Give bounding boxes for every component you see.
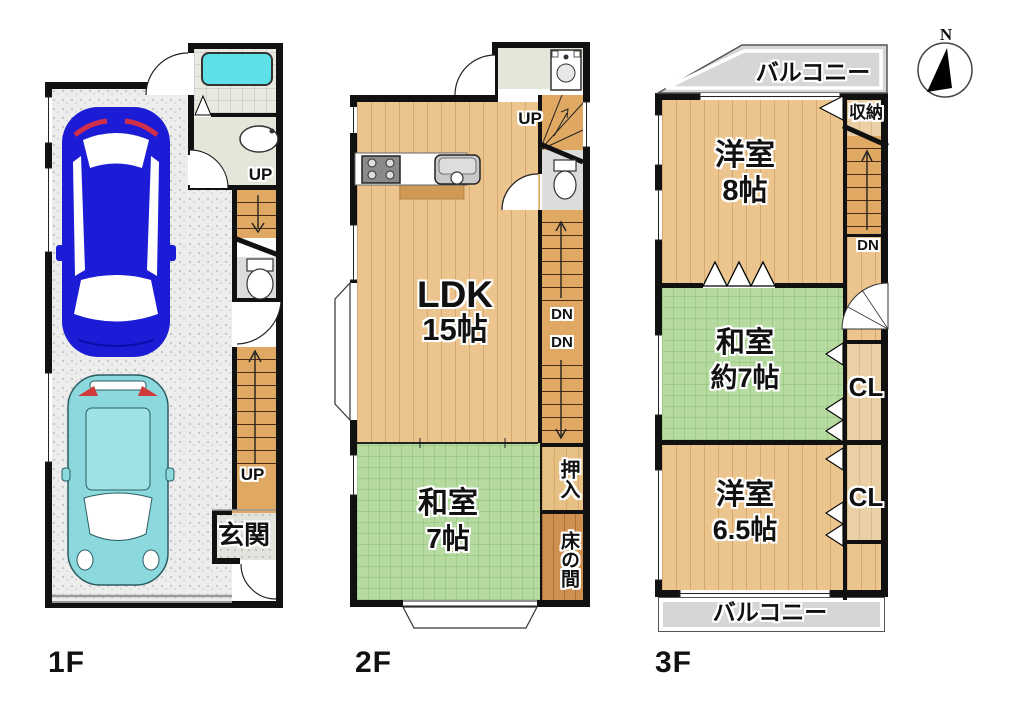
door-swing (237, 302, 281, 344)
wall-segment (350, 600, 403, 607)
tatami-name-label-2f: 和室 (368, 488, 528, 520)
floor-1-label: 1F (48, 646, 85, 680)
wall-segment (881, 93, 888, 597)
stairs-dn-label-a: DN (546, 307, 578, 323)
wall-segment (655, 440, 888, 445)
stairs-dn-label-3f: DN (850, 238, 886, 254)
bay-window (335, 283, 350, 420)
toilet-room-2f (542, 150, 583, 210)
floor-3-plan: バルコニー 収納 DN 洋室 8帖 和室 約7帖 CL 洋室 6.5帖 CL バ… (650, 40, 895, 640)
ldk-room (357, 102, 540, 443)
wall-segment (188, 43, 283, 49)
washroom-up-label: UP (238, 166, 283, 184)
floor-2-plan: UP DN DN LDK 15帖 和室 7帖 押入 床の間 (330, 40, 592, 635)
wall-segment (232, 347, 237, 510)
wall-segment (45, 601, 283, 608)
entrance-label: 玄関 (213, 522, 275, 549)
floor-2-label: 2F (355, 646, 392, 680)
wall-segment (45, 82, 149, 89)
wall-segment (232, 298, 276, 302)
wall-segment (350, 95, 498, 102)
wall-segment (538, 150, 542, 174)
wall-diagonal (234, 238, 281, 256)
wall-segment (843, 136, 847, 283)
tatami-size-label-3f: 約7帖 (660, 364, 830, 392)
wall-segment (843, 340, 888, 344)
closet-top-label: CL (845, 374, 887, 401)
floor-plan-page: { "compass": { "label": "N" }, "floors":… (0, 0, 1023, 713)
tatami-size-label-2f: 7帖 (368, 524, 528, 553)
staircase-1f-main (232, 347, 276, 467)
wall-segment (232, 190, 237, 298)
west8-name-label: 洋室 (665, 140, 825, 172)
bathroom (194, 49, 276, 113)
wall-segment (655, 590, 888, 597)
wall-segment (583, 42, 590, 607)
stairs-up-label: UP (230, 466, 275, 484)
bay-window (403, 600, 537, 628)
stairs-dn-label-b: DN (546, 335, 578, 351)
west65-name-label: 洋室 (660, 480, 830, 510)
tatami-name-label-3f: 和室 (660, 328, 830, 358)
toilet-room-1f (237, 257, 276, 298)
closet-bottom-label: CL (845, 484, 887, 511)
balcony-bottom-label: バルコニー (695, 600, 845, 624)
wall-segment (537, 600, 590, 607)
wall-segment (188, 43, 194, 53)
wall-segment (188, 95, 194, 155)
staircase-1f-upper (237, 190, 276, 238)
west8-size-label: 8帖 (665, 176, 825, 206)
wall-segment (212, 558, 240, 564)
balcony-top-label: バルコニー (738, 60, 888, 84)
wall-segment (350, 420, 357, 607)
wall-segment (492, 42, 590, 48)
wall-segment (540, 447, 542, 600)
wall-segment (492, 42, 498, 95)
wall-segment (350, 95, 357, 283)
wall-segment (211, 113, 276, 117)
entrance-door-swing (241, 564, 276, 599)
wall-segment (662, 283, 703, 288)
wall-segment (540, 510, 583, 514)
wall-segment (540, 443, 583, 447)
compass-n-label: N (936, 26, 956, 44)
laundry-room (498, 48, 583, 89)
ldk-name-label: LDK (375, 276, 535, 315)
wall-segment (538, 210, 542, 443)
wall-segment (775, 283, 843, 288)
oshiire-label: 押入 (548, 450, 578, 508)
tatami-room-2f (357, 443, 540, 600)
west65-size-label: 6.5帖 (660, 516, 830, 544)
tokonoma-label: 床の間 (548, 521, 578, 597)
floor-3-label: 3F (655, 646, 692, 680)
wall-segment (843, 540, 888, 544)
garage-floor (52, 89, 188, 601)
wall-segment (45, 82, 52, 608)
door-swing (455, 55, 495, 95)
ldk-size-label: 15帖 (375, 314, 535, 347)
wall-segment (655, 93, 888, 100)
storage-label: 収納 (844, 104, 888, 122)
stairs-up-label-2f: UP (508, 110, 552, 128)
floor-1-plan: UP UP 玄関 (45, 40, 290, 615)
wall-segment (276, 43, 283, 608)
